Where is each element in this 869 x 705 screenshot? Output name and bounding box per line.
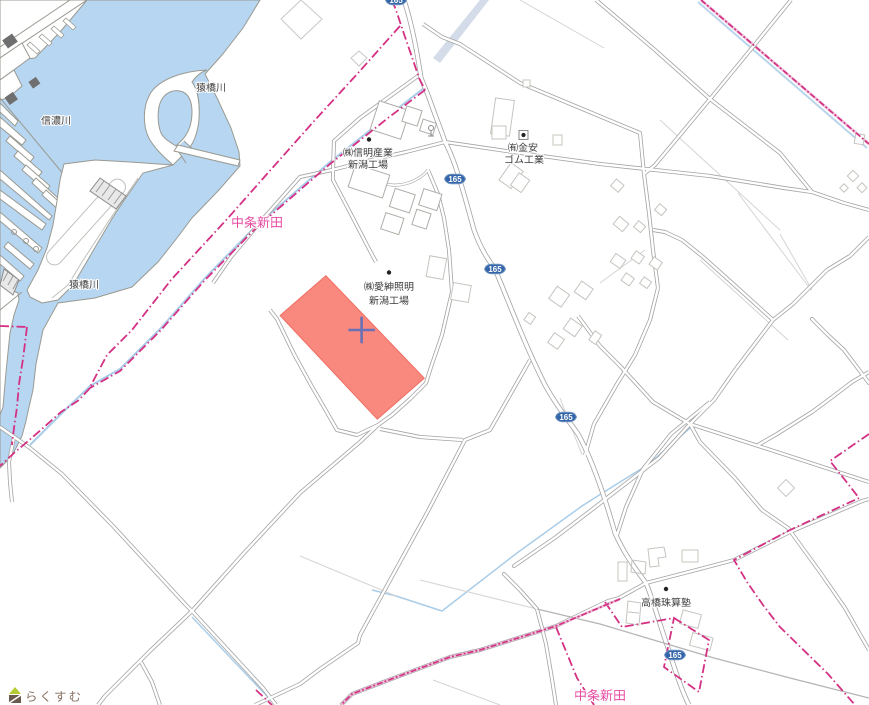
svg-text:165: 165	[448, 175, 462, 184]
svg-text:165: 165	[389, 0, 403, 5]
svg-text:165: 165	[668, 651, 682, 660]
svg-text:165: 165	[559, 413, 573, 422]
svg-text:165: 165	[488, 265, 502, 274]
